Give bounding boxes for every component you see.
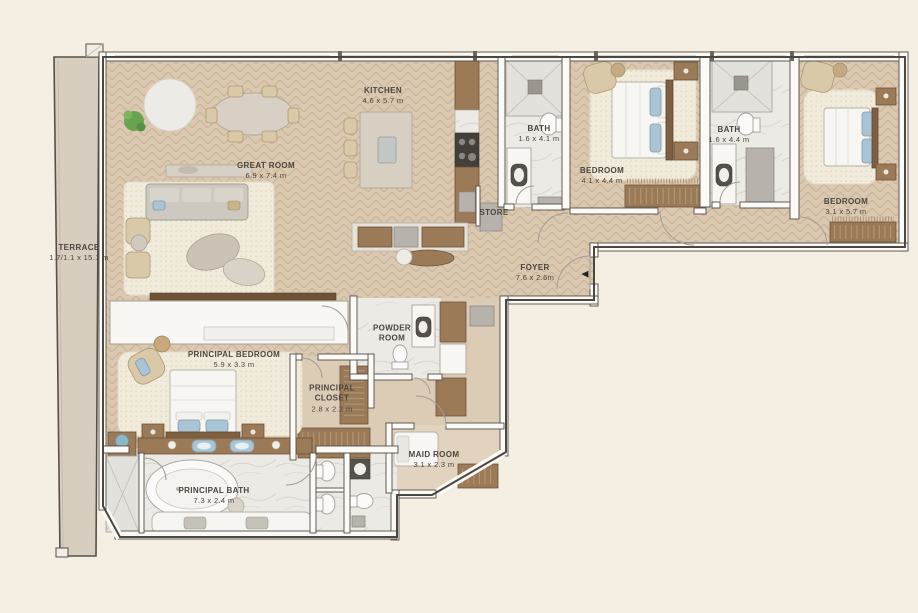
entry-arrow-icon: ◀ bbox=[582, 269, 589, 280]
terrace-area bbox=[54, 44, 103, 557]
floor-plan: TERRACE1.7/1.1 x 15.1 m GREAT ROOM6.9 x … bbox=[0, 0, 918, 613]
principal-bedroom-furniture bbox=[118, 336, 302, 440]
floor-plan-svg bbox=[0, 0, 918, 613]
